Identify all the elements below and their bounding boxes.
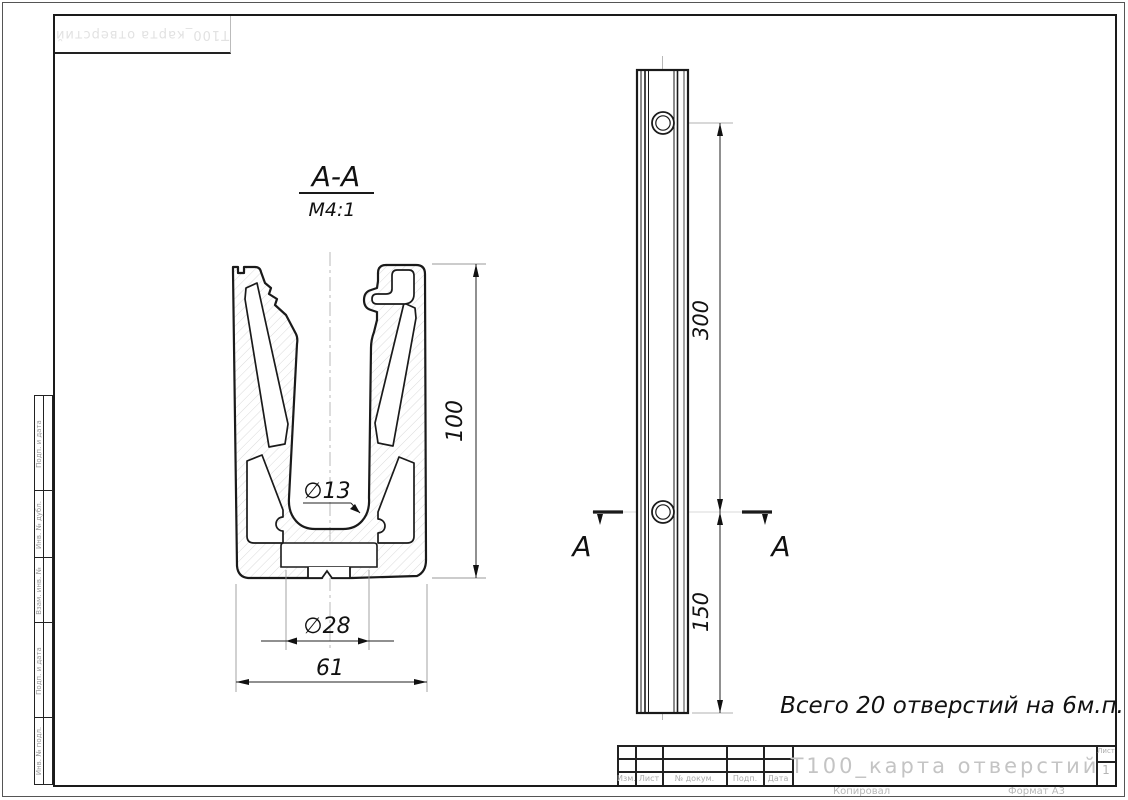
section-scale: М4:1 xyxy=(309,199,356,221)
tb-label-izm: Изм. xyxy=(617,774,635,783)
svg-text:150: 150 xyxy=(689,592,713,632)
svg-text:∅13: ∅13 xyxy=(303,479,350,504)
copy-label: Копировал xyxy=(833,786,890,797)
tb-label-podp: Подп. xyxy=(727,774,763,783)
cut-mark-left: А xyxy=(570,512,623,563)
svg-text:∅28: ∅28 xyxy=(303,614,350,639)
svg-text:300: 300 xyxy=(689,300,713,340)
format-label: Формат А3 xyxy=(1008,786,1065,797)
section-label: А-А xyxy=(310,160,360,193)
svg-text:100: 100 xyxy=(443,400,468,442)
dimension-height-100: 100 xyxy=(432,264,486,578)
cut-letter-right: А xyxy=(769,530,790,563)
cut-letter-left: А xyxy=(570,530,591,563)
note-text: Всего 20 отверстий на 6м.п. xyxy=(780,693,1124,719)
section-view: А-А М4:1 100 ∅13 xyxy=(233,160,486,692)
sheet-number: 1 xyxy=(1097,763,1115,783)
tb-label-list: Лист xyxy=(636,774,662,783)
side-view: 300 150 А А xyxy=(570,56,790,724)
drawing-canvas: А-А М4:1 100 ∅13 xyxy=(0,0,1128,800)
dimension-spacing-300: 300 xyxy=(689,123,723,512)
tb-label-docnum: № докум. xyxy=(663,774,726,783)
base-seat-block xyxy=(281,543,377,567)
sheet-label: Лист xyxy=(1097,747,1115,761)
dimension-end-150: 150 xyxy=(689,512,723,713)
tb-label-data: Дата xyxy=(764,774,792,783)
document-title: Т100_карта отверстий xyxy=(794,746,1096,785)
svg-text:61: 61 xyxy=(316,656,344,681)
cut-mark-right: А xyxy=(742,512,791,563)
drawing-sheet: Т100_карта отверстий Подп. и дата Инв. №… xyxy=(0,0,1128,800)
dimension-hole-28: ∅28 xyxy=(261,570,394,650)
dimension-hole-13: ∅13 xyxy=(303,479,360,513)
